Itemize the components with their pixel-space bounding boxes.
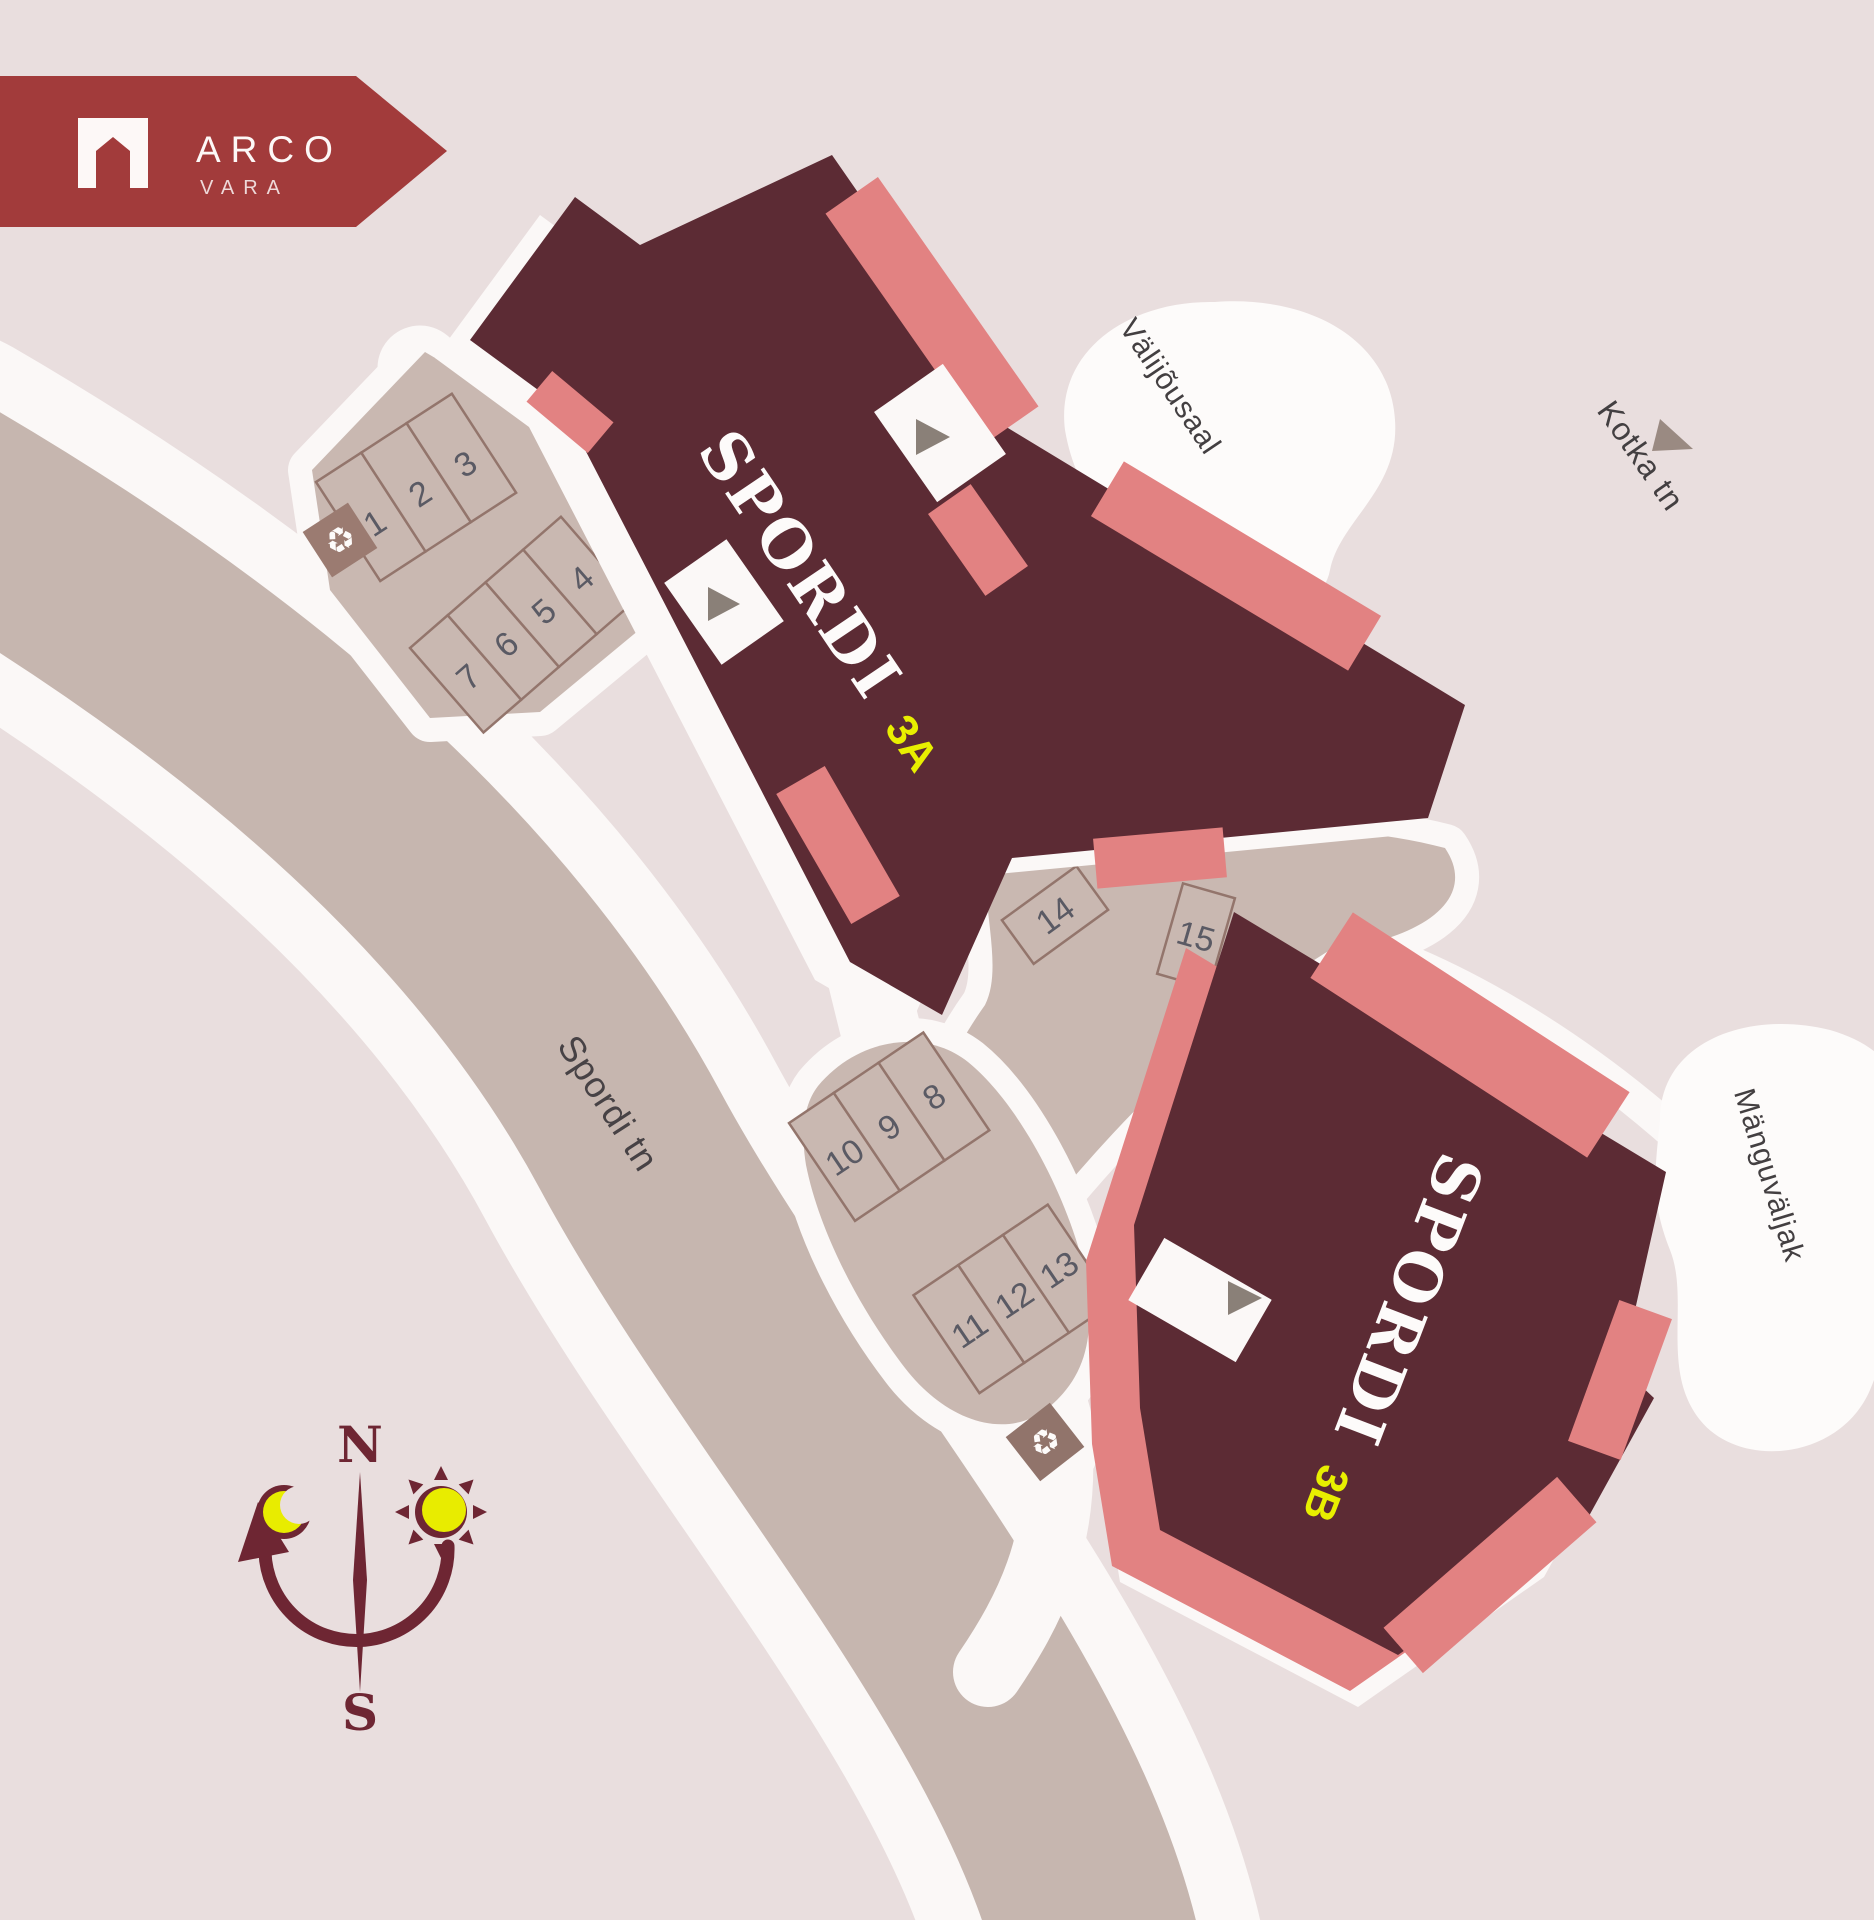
logo-sub-text: VARA (200, 177, 289, 199)
sun-fill (422, 1488, 466, 1532)
moon-cutout (280, 1486, 318, 1524)
site-plan-canvas: 1 2 3 7 6 5 4 10 9 8 11 12 13 14 15 (0, 0, 1874, 1920)
site-plan: 1 2 3 7 6 5 4 10 9 8 11 12 13 14 15 (0, 0, 1874, 1920)
sun-icon (395, 1466, 487, 1558)
compass-north-label: N (337, 1415, 383, 1474)
compass-south-label: S (342, 1683, 378, 1742)
arco-vara-logo: ARCO VARA (0, 76, 447, 227)
logo-brand-text: ARCO (196, 129, 343, 170)
playground-area (1656, 1024, 1874, 1451)
